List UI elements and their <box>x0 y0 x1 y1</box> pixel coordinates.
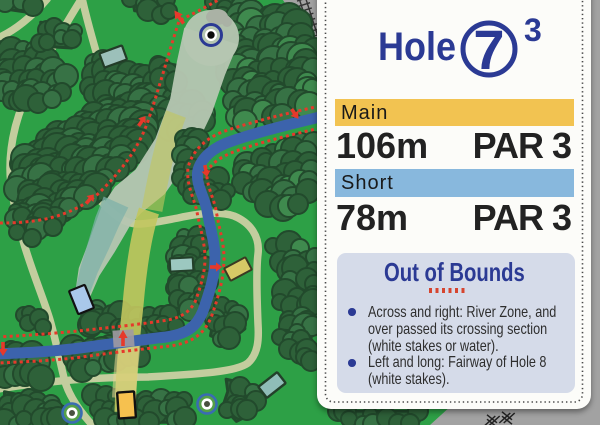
svg-text:7: 7 <box>473 18 504 80</box>
